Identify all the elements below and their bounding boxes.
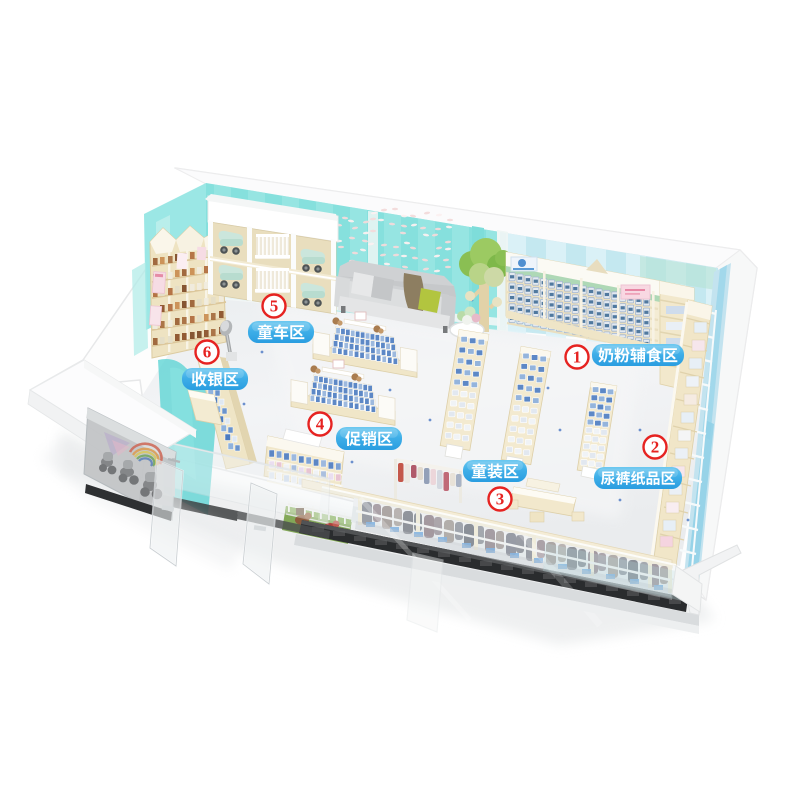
svg-text:5: 5 [270, 297, 279, 316]
svg-text:2: 2 [651, 438, 660, 457]
svg-text:6: 6 [203, 343, 212, 362]
svg-text:1: 1 [573, 348, 582, 367]
svg-text:4: 4 [316, 415, 325, 434]
svg-text:3: 3 [496, 490, 505, 509]
